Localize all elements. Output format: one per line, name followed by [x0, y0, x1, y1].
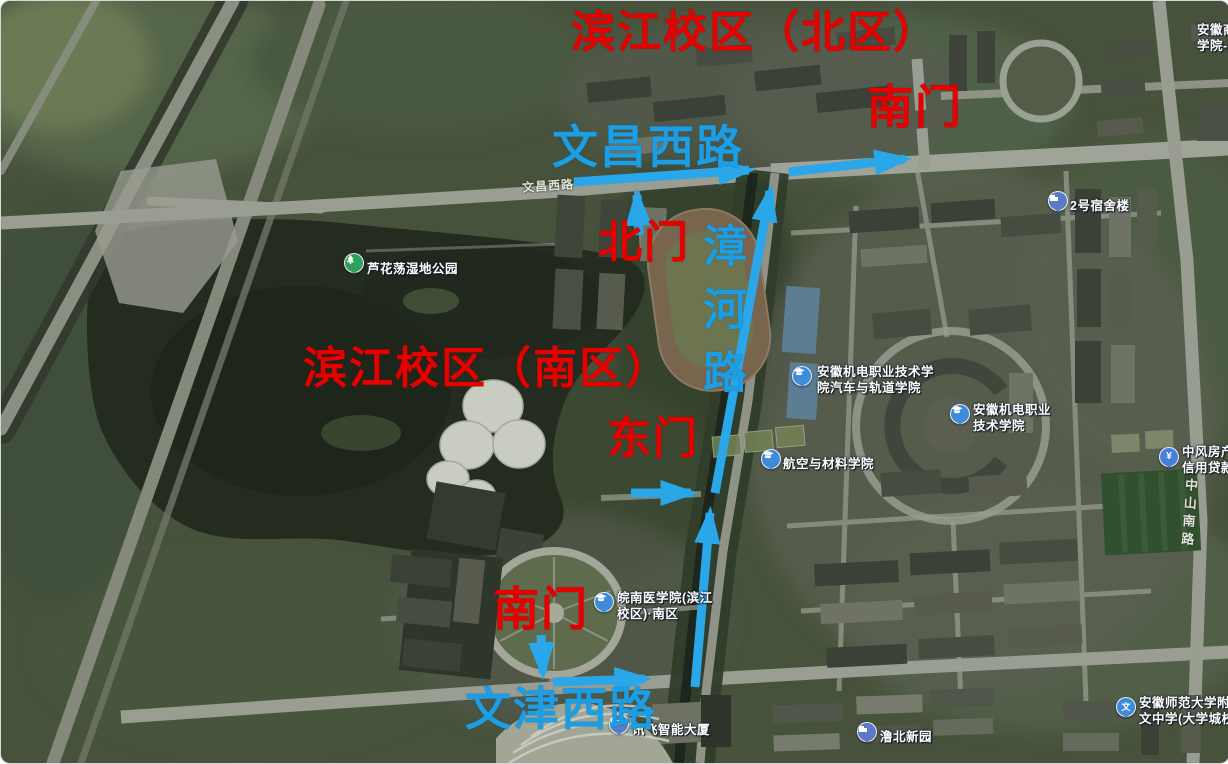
annotation-gate-north: 北门 — [598, 221, 690, 265]
arrow-wenjin-east — [553, 679, 645, 682]
building-pin-icon[interactable] — [1048, 191, 1068, 211]
annotation-road-wenjin: 文津西路 — [465, 687, 657, 733]
education-pin-icon[interactable] — [792, 366, 812, 386]
wen-pin-icon[interactable]: 文 — [1116, 697, 1136, 717]
annotation-road-wenchang: 文昌西路 — [552, 125, 744, 171]
satellite-map-canvas[interactable]: 文昌西路 中山南路 芦花荡湿地公园 2号宿舍楼 安徽机电职业技术学 院汽车与轨道… — [0, 0, 1228, 764]
annotation-campus-south: 滨江校区（南区） — [303, 347, 671, 391]
annotation-gate-south-bottom: 南门 — [493, 587, 589, 633]
annotation-gate-east: 东门 — [607, 417, 699, 461]
park-pin-icon[interactable] — [344, 253, 364, 273]
education-pin-icon[interactable] — [950, 404, 970, 424]
arrow-south-gate-down — [541, 635, 543, 673]
arrow-wenchang-east — [789, 159, 905, 172]
yuan-pin-icon[interactable]: ¥ — [1159, 447, 1179, 467]
education-pin-icon[interactable] — [761, 449, 781, 469]
road-label-wenchang: 文昌西路 — [521, 175, 574, 196]
annotation-campus-north: 滨江校区（北区） — [571, 11, 939, 55]
education-pin-icon[interactable] — [594, 592, 614, 612]
building-pin-icon[interactable] — [857, 722, 877, 742]
annotation-road-zhanghe: 漳河路 — [698, 223, 742, 412]
annotation-gate-south-top: 南门 — [867, 85, 963, 131]
